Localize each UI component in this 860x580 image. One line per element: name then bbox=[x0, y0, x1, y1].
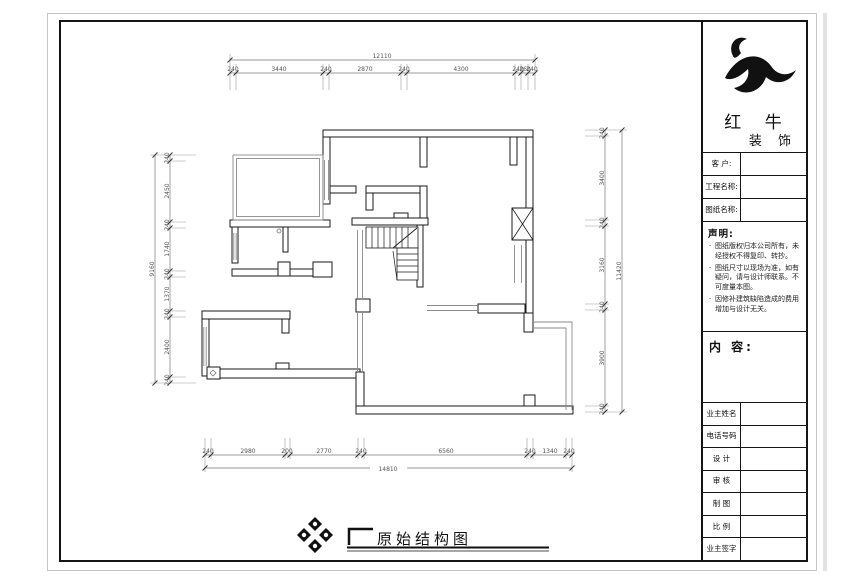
info-label: 设 计 bbox=[703, 448, 741, 470]
info-table: 业主姓名 电话号码 设 计 审 核 制 图 比 例 bbox=[703, 403, 806, 560]
info-label: 业主签字 bbox=[703, 538, 741, 560]
dim-label: 240 bbox=[524, 448, 536, 455]
statement-item: 图纸版权归本公司所有，未经授权不得复印、转抄。 bbox=[709, 242, 803, 262]
dim-label: 14810 bbox=[378, 466, 397, 473]
info-row-owner-name: 业主姓名 bbox=[703, 403, 806, 426]
dim-label: 240 bbox=[164, 219, 171, 231]
field-row-customer: 客 户: bbox=[703, 153, 806, 176]
dimension-left: 240 2450 240 1740 240 1370 240 2400 240 … bbox=[149, 152, 196, 386]
dim-label: 2980 bbox=[240, 448, 255, 455]
dim-label: 9160 bbox=[149, 261, 156, 276]
dim-label: 240 bbox=[164, 152, 171, 164]
dim-label: 240 bbox=[599, 403, 606, 415]
drawing-sheet: 12110 240 3440 240 2870 240 4300 240 260… bbox=[0, 0, 860, 580]
info-value bbox=[741, 538, 806, 560]
info-row-drafting: 制 图 bbox=[703, 493, 806, 516]
field-label: 客 户: bbox=[703, 153, 741, 175]
dim-label: 3400 bbox=[599, 170, 606, 185]
statement-section: 声明: 图纸版权归本公司所有，未经授权不得复印、转抄。 图纸尺寸以现场为准，如有… bbox=[703, 222, 806, 332]
info-value bbox=[741, 403, 806, 425]
dim-label: 3900 bbox=[599, 350, 606, 365]
info-value bbox=[741, 471, 806, 493]
field-label: 工程名称: bbox=[703, 176, 741, 198]
field-row-drawing-name: 图纸名称: bbox=[703, 199, 806, 222]
field-label: 图纸名称: bbox=[703, 199, 741, 221]
dimension-top: 12110 240 3440 240 2870 240 4300 240 260… bbox=[227, 53, 538, 90]
company-logo-area: 红 牛 装 饰 bbox=[703, 22, 806, 153]
dim-label: 2400 bbox=[164, 339, 171, 354]
dim-label: 2770 bbox=[316, 448, 331, 455]
dim-label: 12110 bbox=[372, 53, 391, 60]
info-value bbox=[741, 448, 806, 470]
dim-label: 2870 bbox=[357, 66, 372, 73]
statement-item: 因修补建筑缺陷造成的费用增加与设计无关。 bbox=[709, 295, 803, 315]
dim-label: 240 bbox=[599, 217, 606, 229]
content-section-label: 内 容: bbox=[703, 332, 806, 403]
info-value bbox=[741, 426, 806, 448]
brand-subname: 装 饰 bbox=[749, 130, 797, 149]
dim-label: 240 bbox=[227, 66, 239, 73]
dim-label: 240 bbox=[202, 448, 214, 455]
dim-label: 240 bbox=[164, 374, 171, 386]
statement-list: 图纸版权归本公司所有，未经授权不得复印、转抄。 图纸尺寸以现场为准，如有疑问，请… bbox=[709, 242, 803, 315]
shaft-column bbox=[512, 208, 533, 240]
dim-label: 4300 bbox=[453, 66, 468, 73]
statement-item: 图纸尺寸以现场为准，如有疑问，请与设计师联系。不可度量本图。 bbox=[709, 264, 803, 293]
dim-label: 240 bbox=[599, 301, 606, 313]
info-label: 业主姓名 bbox=[703, 403, 741, 425]
dim-label: 200 bbox=[281, 448, 293, 455]
dimension-bottom: 240 2980 200 2770 240 6560 240 1340 240 … bbox=[202, 438, 575, 473]
walls bbox=[202, 130, 573, 414]
info-value bbox=[741, 516, 806, 538]
dim-label: 3160 bbox=[599, 257, 606, 272]
dim-label: 240 bbox=[320, 66, 332, 73]
info-label: 比 例 bbox=[703, 516, 741, 538]
field-value bbox=[741, 199, 806, 221]
dim-label: 1340 bbox=[542, 448, 557, 455]
info-label: 电话号码 bbox=[703, 426, 741, 448]
title-block: 红 牛 装 饰 客 户: 工程名称: 图纸名称: 声明: 图纸版权归本公司所有，… bbox=[701, 20, 808, 562]
dim-label: 240 bbox=[398, 66, 410, 73]
info-row-owner-signature: 业主签字 bbox=[703, 538, 806, 560]
dim-label: 240 bbox=[164, 308, 171, 320]
info-row-review: 审 核 bbox=[703, 471, 806, 494]
info-row-phone: 电话号码 bbox=[703, 426, 806, 449]
dim-label: 240 bbox=[526, 66, 538, 73]
bull-logo-icon bbox=[703, 22, 804, 106]
dim-label: 1740 bbox=[164, 241, 171, 256]
info-value bbox=[741, 493, 806, 515]
field-row-project-name: 工程名称: bbox=[703, 176, 806, 199]
dim-label: 240 bbox=[355, 448, 367, 455]
field-value bbox=[741, 176, 806, 198]
dim-label: 11420 bbox=[616, 261, 623, 280]
dim-label: 240 bbox=[599, 127, 606, 139]
dim-label: 2450 bbox=[164, 183, 171, 198]
dim-label: 6560 bbox=[438, 448, 453, 455]
info-row-scale: 比 例 bbox=[703, 516, 806, 539]
drawing-title: 原始结构图 bbox=[377, 528, 472, 549]
info-label: 审 核 bbox=[703, 471, 741, 493]
diamond-compass-icon bbox=[296, 516, 334, 554]
dim-label: 1370 bbox=[164, 286, 171, 301]
statement-heading: 声明: bbox=[708, 226, 803, 240]
dimension-right: 240 3400 240 3160 240 3900 240 11420 bbox=[585, 127, 627, 415]
dim-label: 3440 bbox=[271, 66, 286, 73]
info-row-design: 设 计 bbox=[703, 448, 806, 471]
dim-label: 240 bbox=[563, 448, 575, 455]
info-label: 制 图 bbox=[703, 493, 741, 515]
staircase bbox=[366, 227, 418, 280]
field-value bbox=[741, 153, 806, 175]
dim-label: 240 bbox=[164, 268, 171, 280]
